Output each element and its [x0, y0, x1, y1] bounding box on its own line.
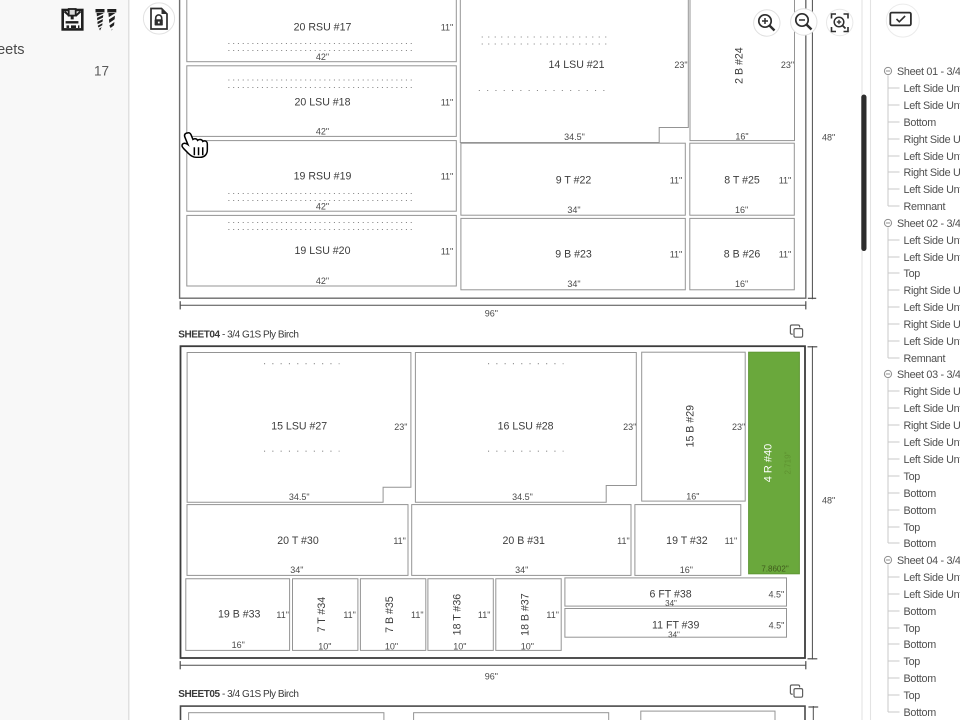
svg-text:Top: Top: [904, 656, 921, 668]
svg-text:11": 11": [546, 610, 559, 620]
svg-text:Bottom: Bottom: [904, 639, 937, 651]
svg-text:34": 34": [290, 565, 303, 575]
svg-text:34": 34": [668, 630, 680, 639]
svg-text:10": 10": [453, 641, 466, 651]
svg-text:20 T #30: 20 T #30: [277, 535, 319, 547]
svg-text:Left Side Unfini: Left Side Unfini: [904, 454, 960, 466]
svg-text:7 T #34: 7 T #34: [316, 597, 328, 633]
svg-text:Left Side Unfini: Left Side Unfini: [904, 403, 960, 415]
svg-text:Sheet 03 - 3/4 G1: Sheet 03 - 3/4 G1: [897, 369, 960, 381]
svg-text:11": 11": [276, 610, 289, 620]
svg-text:34": 34": [567, 279, 580, 289]
svg-text:34": 34": [567, 205, 580, 215]
svg-text:16": 16": [735, 205, 748, 215]
svg-text:Sheet 01 - 3/4 G1: Sheet 01 - 3/4 G1: [897, 66, 960, 78]
svg-text:19 RSU #19: 19 RSU #19: [294, 171, 352, 183]
svg-text:11": 11": [343, 610, 356, 620]
svg-text:Bottom: Bottom: [904, 538, 937, 550]
svg-text:Left Side Unfini: Left Side Unfini: [904, 572, 960, 584]
svg-text:11": 11": [411, 610, 424, 620]
svg-text:11": 11": [441, 23, 454, 33]
svg-text:18 B #37: 18 B #37: [520, 593, 532, 636]
svg-text:11": 11": [617, 536, 630, 546]
svg-text:Left Side Unfini: Left Side Unfini: [904, 151, 960, 163]
svg-text:Left Side Unfini: Left Side Unfini: [904, 437, 960, 449]
svg-text:10": 10": [521, 641, 534, 651]
svg-text:16": 16": [686, 492, 699, 502]
svg-text:11": 11": [441, 246, 454, 256]
svg-text:11": 11": [725, 536, 738, 546]
svg-text:96": 96": [485, 672, 498, 682]
svg-text:Left Side Unfini: Left Side Unfini: [904, 336, 960, 348]
svg-text:Left Side Unfini: Left Side Unfini: [904, 184, 960, 196]
svg-text:16": 16": [735, 131, 748, 141]
svg-text:Left Side Unfini: Left Side Unfini: [904, 235, 960, 247]
svg-text:10": 10": [318, 641, 331, 651]
svg-text:Left Side Unfini: Left Side Unfini: [904, 302, 960, 314]
svg-text:20 B #31: 20 B #31: [502, 535, 545, 547]
svg-text:Right Side Unf: Right Side Unf: [904, 420, 960, 432]
svg-text:23": 23": [394, 422, 407, 432]
svg-text:Bottom: Bottom: [904, 505, 937, 517]
svg-text:Left Side Unfini: Left Side Unfini: [904, 100, 960, 112]
svg-text:23": 23": [674, 60, 687, 70]
svg-text:34": 34": [515, 565, 528, 575]
svg-text:16": 16": [232, 640, 245, 650]
svg-text:SHEET05 - 3/4 G1S Ply Birch: SHEET05 - 3/4 G1S Ply Birch: [178, 689, 298, 700]
svg-text:11": 11": [670, 250, 683, 260]
svg-text:16 LSU #28: 16 LSU #28: [498, 420, 554, 432]
svg-text:15 LSU #27: 15 LSU #27: [271, 420, 327, 432]
svg-text:Sheet 04 - 3/4 G1: Sheet 04 - 3/4 G1: [897, 555, 960, 567]
svg-text:Top: Top: [904, 268, 921, 280]
svg-text:19 LSU #20: 19 LSU #20: [295, 245, 351, 257]
svg-text:20 LSU #18: 20 LSU #18: [295, 96, 351, 108]
svg-text:Sheets: Sheets: [0, 42, 25, 58]
svg-text:23": 23": [623, 422, 636, 432]
svg-text:2 B #24: 2 B #24: [734, 47, 746, 84]
svg-text:Top: Top: [904, 471, 921, 483]
svg-text:Top: Top: [904, 690, 921, 702]
svg-text:Right Side Unf: Right Side Unf: [904, 285, 960, 297]
svg-text:15 B #29: 15 B #29: [685, 405, 697, 448]
svg-text:34.5": 34.5": [512, 492, 533, 502]
svg-text:Bottom: Bottom: [904, 673, 937, 685]
svg-text:7.8602": 7.8602": [761, 565, 788, 574]
svg-text:9 B #23: 9 B #23: [555, 248, 592, 260]
svg-text:4.5": 4.5": [768, 590, 784, 600]
svg-text:23": 23": [732, 422, 745, 432]
svg-text:Right Side Unf: Right Side Unf: [904, 167, 960, 179]
svg-text:42": 42": [316, 52, 329, 62]
svg-text:Right Side Unf: Right Side Unf: [904, 319, 960, 331]
svg-text:Top: Top: [904, 522, 921, 534]
svg-text:10": 10": [385, 641, 398, 651]
svg-text:11": 11": [393, 536, 406, 546]
svg-text:17: 17: [94, 64, 109, 79]
svg-text:42": 42": [316, 276, 329, 286]
svg-text:19 T #32: 19 T #32: [666, 535, 708, 547]
svg-text:16": 16": [680, 565, 693, 575]
svg-text:4 R #40: 4 R #40: [763, 444, 775, 483]
svg-text:7 B #35: 7 B #35: [384, 596, 396, 633]
svg-text:8 T #25: 8 T #25: [724, 174, 760, 186]
svg-text:20 RSU #17: 20 RSU #17: [294, 22, 352, 34]
svg-text:Left Side Unfini: Left Side Unfini: [904, 83, 960, 95]
svg-text:Bottom: Bottom: [904, 488, 937, 500]
svg-text:Sheet 02 - 3/4 G1: Sheet 02 - 3/4 G1: [897, 218, 960, 230]
svg-text:34.5": 34.5": [564, 132, 585, 142]
svg-text:42": 42": [316, 201, 329, 211]
svg-text:18 T #36: 18 T #36: [452, 594, 464, 636]
svg-text:Top: Top: [904, 623, 921, 635]
svg-text:11": 11": [441, 172, 454, 182]
svg-text:Right Side Unf: Right Side Unf: [904, 134, 960, 146]
svg-text:34.5": 34.5": [289, 492, 310, 502]
svg-text:42": 42": [316, 127, 329, 137]
svg-text:11": 11": [779, 250, 792, 260]
svg-text:Bottom: Bottom: [904, 707, 937, 719]
svg-text:23": 23": [781, 60, 794, 70]
svg-text:16": 16": [735, 279, 748, 289]
svg-text:48": 48": [822, 133, 835, 143]
svg-text:Right Side Unf: Right Side Unf: [904, 386, 960, 398]
svg-text:Bottom: Bottom: [904, 117, 937, 129]
svg-text:19 B #33: 19 B #33: [218, 609, 261, 621]
svg-text:34": 34": [665, 599, 677, 608]
svg-text:14 LSU #21: 14 LSU #21: [549, 59, 605, 71]
svg-text:4.5": 4.5": [769, 621, 785, 631]
svg-text:48": 48": [822, 496, 835, 506]
svg-text:11": 11": [441, 98, 454, 108]
svg-text:Remnant: Remnant: [904, 201, 946, 213]
svg-text:96": 96": [485, 308, 498, 318]
svg-text:11": 11": [779, 176, 792, 186]
svg-text:Bottom: Bottom: [904, 606, 937, 618]
svg-text:2.719": 2.719": [784, 451, 793, 474]
svg-text:SHEET04 - 3/4 G1S Ply Birch: SHEET04 - 3/4 G1S Ply Birch: [178, 329, 298, 340]
svg-text:Left Side Unfini: Left Side Unfini: [904, 589, 960, 601]
svg-text:Left Side Unfini: Left Side Unfini: [904, 252, 960, 264]
svg-text:9 T #22: 9 T #22: [556, 174, 592, 186]
svg-text:11": 11": [670, 176, 683, 186]
svg-text:11": 11": [478, 610, 491, 620]
svg-text:8 B #26: 8 B #26: [724, 248, 761, 260]
svg-text:Remnant: Remnant: [904, 353, 946, 365]
